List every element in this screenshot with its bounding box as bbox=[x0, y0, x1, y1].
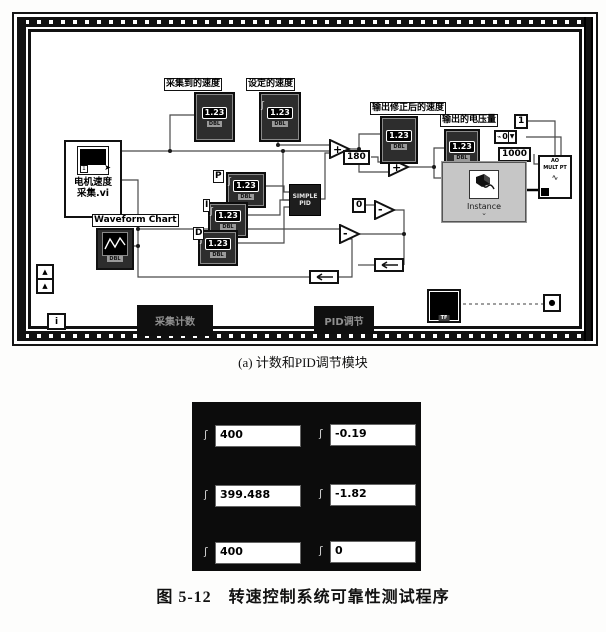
set-speed-label: 设定的速度 bbox=[246, 78, 295, 91]
front-panel: ʃ 400 ʃ -0.19 ʃ 399.488 ʃ -1.82 ʃ 400 ʃ … bbox=[192, 402, 421, 571]
front-panel-field-speed-1[interactable]: 400 bbox=[215, 425, 301, 447]
motor-vi-label-line1: 电机速度 bbox=[74, 177, 112, 188]
p-gain-label: P bbox=[213, 170, 224, 183]
add-icon: + bbox=[333, 143, 342, 156]
spinner-icon[interactable]: ʃ bbox=[210, 208, 213, 217]
io-icon: ⌁ bbox=[497, 132, 501, 142]
feedback-node bbox=[374, 258, 404, 272]
front-panel-field-speed-3[interactable]: 400 bbox=[215, 542, 301, 564]
output-voltage-value: 1.23 bbox=[449, 141, 475, 153]
figure-page: 1 ➤ 电机速度 采集.vi Waveform Chart DBL 采集到的速度… bbox=[0, 0, 606, 632]
front-panel-field-output-1[interactable]: -0.19 bbox=[330, 424, 416, 446]
feedback-node bbox=[309, 270, 339, 284]
output-voltage-tag: DBL bbox=[454, 155, 469, 161]
cursor-icon: ➤ bbox=[104, 164, 111, 172]
spinner-icon[interactable]: ʃ bbox=[228, 178, 231, 187]
p-gain-value: 1.23 bbox=[233, 180, 259, 192]
subtract-node: - bbox=[374, 200, 396, 220]
i-gain-value: 1.23 bbox=[215, 210, 241, 222]
corrected-speed-tag: DBL bbox=[391, 144, 406, 150]
shift-register-lower[interactable]: ▲ bbox=[36, 278, 54, 294]
corrected-speed-indicator: 1.23 DBL bbox=[380, 116, 418, 164]
pid-block-line1: SIMPLE bbox=[293, 193, 318, 200]
spinner-icon[interactable]: ʃ bbox=[319, 488, 329, 499]
motor-speed-vi-icon: 1 ➤ bbox=[77, 146, 109, 175]
ao-label-line2: MULT PT bbox=[543, 166, 567, 171]
corrected-speed-value: 1.23 bbox=[386, 130, 412, 142]
set-speed-value: 1.23 bbox=[267, 107, 293, 119]
stop-boolean-tag: TF bbox=[439, 315, 450, 321]
iteration-terminal: i bbox=[47, 313, 66, 330]
motor-vi-label-line2: 采集.vi bbox=[77, 188, 109, 199]
constant-0: 0 bbox=[352, 198, 366, 213]
dropdown-icon[interactable]: ▼ bbox=[508, 132, 516, 142]
tab-pid-adjust-label: PID调节 bbox=[324, 313, 363, 328]
shift-arrow-icon: ▲ bbox=[42, 283, 47, 290]
analog-wave-icon: ∿ bbox=[552, 173, 559, 183]
tab-pid-adjust: PID调节 bbox=[314, 306, 374, 334]
figure-caption: 图 5-12 转速控制系统可靠性测试程序 bbox=[0, 583, 606, 607]
constant-1: 1 bbox=[514, 114, 528, 129]
simple-pid-block[interactable]: SIMPLE PID bbox=[289, 184, 321, 216]
collected-speed-value: 1.23 bbox=[202, 107, 228, 119]
shift-arrow-icon: ▲ bbox=[42, 269, 47, 276]
spinner-icon[interactable]: ʃ bbox=[204, 429, 214, 440]
chevron-icon[interactable]: ⌄ bbox=[481, 211, 487, 216]
motor-speed-vi[interactable]: 1 ➤ 电机速度 采集.vi bbox=[64, 140, 122, 218]
subtract-icon: - bbox=[343, 227, 348, 240]
io-ring-constant[interactable]: ⌁ 0 ▼ bbox=[494, 130, 517, 144]
waveform-chart-label: Waveform Chart bbox=[92, 214, 179, 227]
output-voltage-label: 输出的电压量 bbox=[440, 114, 498, 127]
waveform-chart-tag: DBL bbox=[107, 256, 122, 262]
subfigure-caption: (a) 计数和PID调节模块 bbox=[0, 352, 606, 371]
collected-speed-indicator: 1.23 DBL bbox=[194, 92, 235, 142]
pid-block-line2: PID bbox=[299, 200, 311, 207]
d-gain-tag: DBL bbox=[210, 252, 225, 258]
d-gain-value: 1.23 bbox=[205, 238, 231, 250]
vi-index-label: 1 bbox=[80, 165, 88, 173]
set-speed-control[interactable]: ʃ 1.23 DBL bbox=[259, 92, 301, 142]
set-speed-tag: DBL bbox=[272, 121, 287, 127]
front-panel-field-speed-2[interactable]: 399.488 bbox=[215, 485, 301, 507]
corrected-speed-label: 输出修正后的速度 bbox=[370, 102, 446, 115]
spinner-icon[interactable]: ʃ bbox=[319, 428, 329, 439]
connector-block-icon bbox=[541, 188, 549, 196]
i-gain-label: I bbox=[203, 199, 210, 212]
vi-screen bbox=[80, 149, 106, 165]
d-gain-label: D bbox=[193, 227, 204, 240]
ao-label-line1: AO bbox=[551, 159, 559, 164]
tab-sample-count: 采集计数 bbox=[137, 305, 213, 336]
waveform-icon bbox=[102, 232, 128, 256]
spinner-icon[interactable]: ʃ bbox=[261, 102, 264, 111]
instance-express-vi[interactable]: Instance ⌄ bbox=[442, 162, 526, 222]
stop-boolean-terminal[interactable]: TF bbox=[427, 289, 461, 323]
condition-dot-icon: ● bbox=[549, 299, 556, 307]
ao-mult-pt-vi[interactable]: AO MULT PT ∿ bbox=[538, 155, 572, 199]
collected-speed-tag: DBL bbox=[207, 121, 222, 127]
collected-speed-label: 采集到的速度 bbox=[164, 78, 222, 91]
constant-180: 180 bbox=[343, 150, 370, 165]
subtract-icon: - bbox=[378, 203, 383, 216]
iteration-label: i bbox=[55, 317, 58, 327]
front-panel-field-output-3[interactable]: 0 bbox=[330, 541, 416, 563]
waveform-chart-terminal: DBL bbox=[96, 228, 134, 270]
tab-sample-count-label: 采集计数 bbox=[155, 313, 195, 328]
front-panel-field-output-2[interactable]: -1.82 bbox=[330, 484, 416, 506]
spinner-icon[interactable]: ʃ bbox=[204, 546, 214, 557]
instance-icon bbox=[469, 170, 499, 199]
loop-condition-terminal[interactable]: ● bbox=[543, 294, 561, 312]
spinner-icon[interactable]: ʃ bbox=[319, 545, 329, 556]
spinner-icon[interactable]: ʃ bbox=[204, 489, 214, 500]
constant-1000: 1000 bbox=[498, 147, 531, 162]
p-gain-tag: DBL bbox=[238, 194, 253, 200]
labview-block-diagram: 1 ➤ 电机速度 采集.vi Waveform Chart DBL 采集到的速度… bbox=[12, 12, 598, 346]
subtract-node: - bbox=[339, 224, 361, 244]
